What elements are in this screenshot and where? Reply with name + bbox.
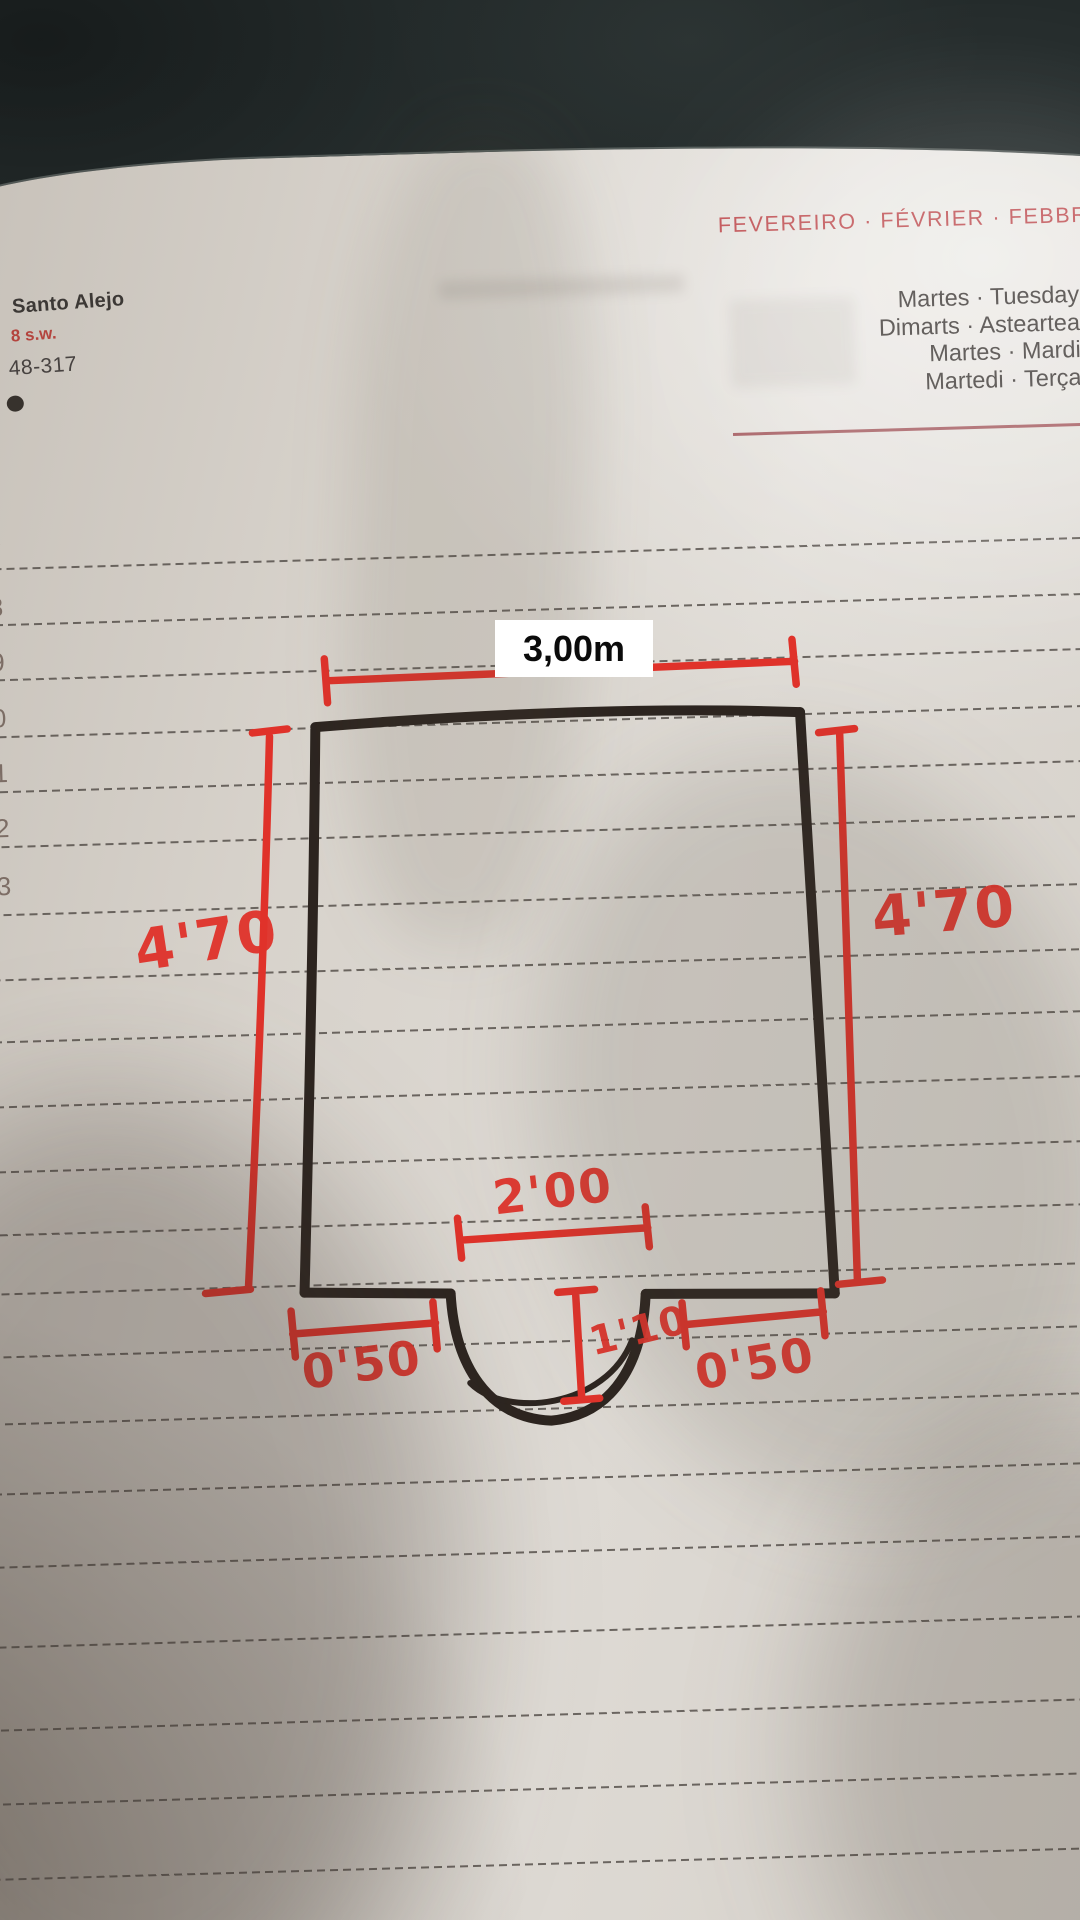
floor-plan-sketch	[0, 131, 1080, 1920]
room-wall-bottom-left	[305, 1288, 451, 1297]
notebook-page: 7890123 Santo Alejo 8 s.w. 48-317 FEVERE…	[0, 131, 1080, 1920]
room-wall-top	[315, 706, 800, 727]
room-wall-left	[288, 729, 331, 1293]
room-wall-bottom-right	[646, 1288, 835, 1298]
right-height-label: 4'70	[869, 873, 1018, 950]
photo-stage: 7890123 Santo Alejo 8 s.w. 48-317 FEVERE…	[0, 0, 1080, 1920]
room-wall-right	[800, 712, 835, 1294]
dimension-left	[189, 729, 303, 1294]
digital-width-overlay-label: 3,00m	[495, 620, 653, 677]
